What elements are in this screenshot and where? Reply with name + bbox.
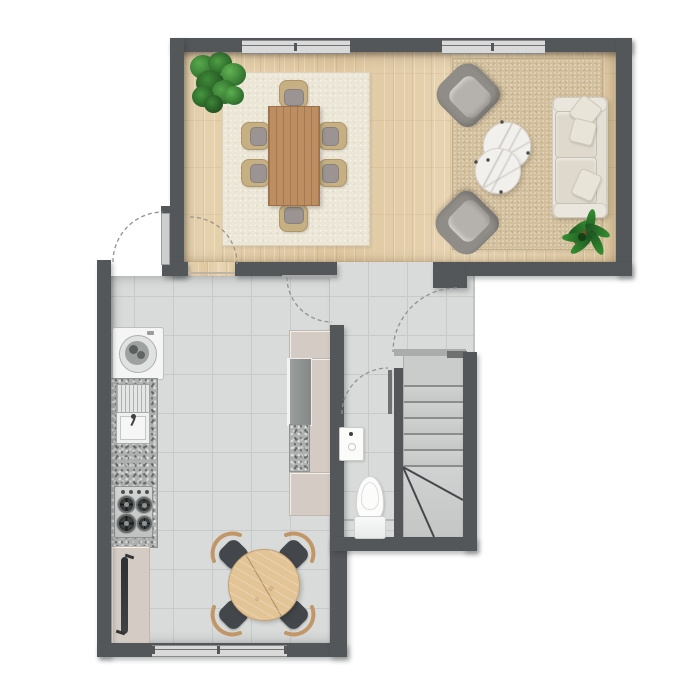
toilet-tank <box>354 516 386 539</box>
washer-laundry <box>130 355 137 362</box>
radiator <box>121 557 128 635</box>
stair-winder-area <box>404 465 464 539</box>
burner <box>118 496 135 513</box>
wash-basin <box>339 427 364 461</box>
entrance-door-arc <box>113 212 163 262</box>
hob-knob <box>137 490 141 494</box>
window-mullion <box>284 646 287 654</box>
plant-center <box>578 233 586 241</box>
kitchen-round-table <box>228 549 300 621</box>
wall-corner-vertical <box>330 537 347 657</box>
kitchen-sink <box>116 412 150 444</box>
basin-drain <box>348 443 356 451</box>
bathroom-door-leaf <box>388 370 393 414</box>
wall-living-right <box>616 38 632 276</box>
basin-faucet <box>349 432 353 436</box>
opening-tile-floor <box>337 262 433 276</box>
wall-kitchen-left <box>97 260 111 657</box>
plant-leaf <box>224 86 244 105</box>
coffee-table-small <box>475 148 521 194</box>
burner <box>137 516 152 531</box>
wall-stub <box>433 262 467 288</box>
window-mullion <box>217 646 220 654</box>
cabinet-granite-top <box>289 424 310 472</box>
window-top-2 <box>442 40 545 54</box>
tile-edge-line <box>473 276 475 352</box>
toilet-seat <box>361 482 379 510</box>
kitchen-door-leaf <box>282 275 337 278</box>
entrance-door-leaf <box>161 213 170 265</box>
wall-stair-stub <box>394 368 403 537</box>
floor-plan <box>0 0 700 700</box>
staircase <box>403 356 464 537</box>
dining-door-threshold <box>188 272 235 274</box>
dining-chair <box>318 159 347 187</box>
window-mullion <box>294 43 297 51</box>
dining-chair <box>279 80 308 108</box>
burner <box>136 497 152 513</box>
window-kitchen <box>152 645 287 657</box>
fridge <box>287 358 312 426</box>
dining-chair <box>279 204 308 232</box>
radiator-cabinet <box>111 546 150 644</box>
window-mullion <box>491 43 494 51</box>
chair-cushion <box>322 164 339 183</box>
chair-cushion <box>284 89 304 106</box>
chair-cushion <box>322 127 339 146</box>
dining-table <box>268 106 320 206</box>
wall-living-left <box>170 38 184 276</box>
washer-laundry <box>137 351 145 359</box>
cabinet-block <box>289 472 332 516</box>
hob-knob <box>121 490 125 494</box>
burner <box>117 514 136 533</box>
washer-control <box>147 331 154 335</box>
hob-knob <box>145 490 149 494</box>
wall-bathroom-bottom <box>330 537 477 551</box>
plant-leaf <box>204 95 223 113</box>
washing-machine <box>112 327 164 380</box>
dining-chair <box>241 122 270 150</box>
sink-drainboard <box>116 384 150 414</box>
window-top-1 <box>242 40 350 54</box>
wall-bottom-seg <box>467 262 632 276</box>
window-mullion <box>152 646 155 654</box>
dining-chair <box>318 122 347 150</box>
chair-cushion <box>284 207 304 224</box>
chair-cushion <box>250 164 267 183</box>
hob-knob <box>129 490 133 494</box>
gas-hob <box>114 486 153 538</box>
cabinet-block <box>289 330 332 360</box>
dining-chair <box>241 159 270 187</box>
sofa-armrest <box>553 203 607 218</box>
wall-bottom-seg <box>235 262 337 276</box>
wall-top <box>170 38 632 52</box>
chair-cushion <box>250 127 267 146</box>
wall-stairs-right <box>463 352 477 551</box>
